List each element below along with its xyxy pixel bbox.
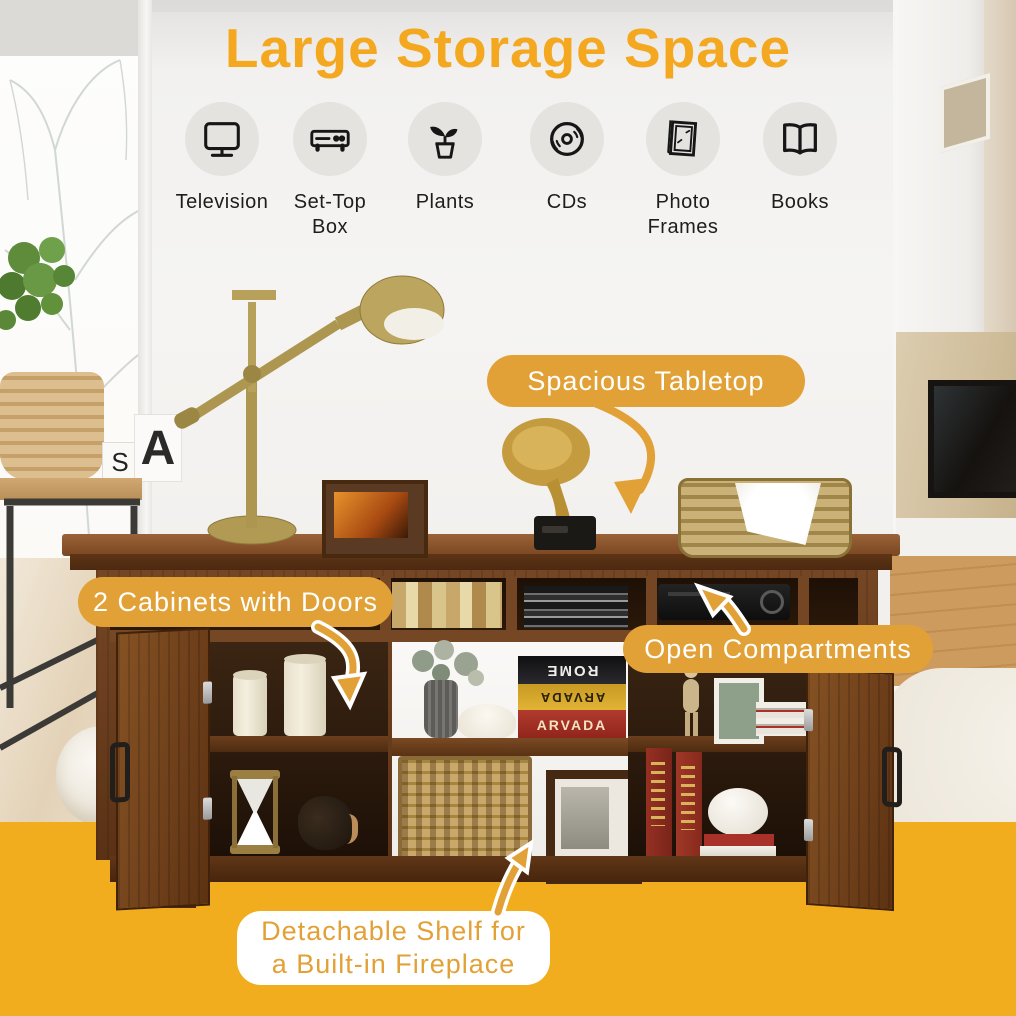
feature-circle <box>530 102 604 176</box>
door-hinge <box>804 709 813 732</box>
led-candle <box>233 674 267 736</box>
feature-circle <box>646 102 720 176</box>
callout-label-line1: Detachable Shelf for <box>261 915 526 948</box>
door-hinge <box>804 819 813 842</box>
round-speaker <box>708 788 768 836</box>
red-book <box>704 834 774 846</box>
wicker-basket-left <box>0 372 104 480</box>
photo-frame-icon <box>660 116 706 162</box>
feature-label: Set-Top Box <box>278 190 382 240</box>
divider <box>506 576 517 634</box>
feature-circle <box>185 102 259 176</box>
door-handle <box>882 746 902 807</box>
feature-set-top-box: Set-Top Box <box>270 102 390 240</box>
fireplace-opening <box>928 380 1016 498</box>
lace-cloth <box>735 483 821 545</box>
door-hinge <box>203 797 212 819</box>
letter-mug-s: S <box>102 442 138 482</box>
door-hinge <box>203 681 212 703</box>
callout-label-line2: a Built-in Fireplace <box>272 948 516 981</box>
dvd-knob <box>760 590 784 614</box>
feature-label: Plants <box>393 190 497 215</box>
book-icon <box>777 116 823 162</box>
gramophone <box>498 414 608 554</box>
feature-label: Books <box>748 190 852 215</box>
tabletop-picture-frame <box>322 480 428 558</box>
console-table-top <box>0 478 142 500</box>
plant-icon <box>422 116 468 162</box>
cd-stack <box>524 586 628 628</box>
ceramic-dish <box>458 704 516 740</box>
television-icon <box>199 116 245 162</box>
dvd-slot <box>668 592 730 596</box>
callout-label: Spacious Tabletop <box>527 366 764 397</box>
wooden-mannequin <box>676 664 706 736</box>
feature-label: CDs <box>515 190 619 215</box>
feature-television: Television <box>162 102 282 215</box>
white-rug <box>882 668 1016 825</box>
set-top-box-icon <box>307 116 353 162</box>
product-infographic: S A <box>0 0 1016 1016</box>
tall-red-book <box>676 752 702 856</box>
tall-red-book <box>646 748 672 856</box>
callout-label: Open Compartments <box>644 634 912 665</box>
book-spine: ARVADA <box>518 684 626 710</box>
tabletop-basket <box>678 478 852 558</box>
book-spine: ARVADA <box>518 710 626 740</box>
mug-letter: S <box>111 447 128 478</box>
vase <box>424 680 458 738</box>
feature-label: Television <box>170 190 274 215</box>
callout-cabinets: 2 Cabinets with Doors <box>78 577 393 627</box>
house-plant <box>0 228 104 348</box>
page-title: Large Storage Space <box>0 16 1016 80</box>
feature-circle <box>763 102 837 176</box>
book-spine: ROME <box>518 656 626 684</box>
right-cabinet-door <box>806 667 894 911</box>
cd-icon <box>544 116 590 162</box>
ceiling-strip <box>0 0 1016 12</box>
elephant-figurine <box>298 796 354 850</box>
detachable-shelf-board <box>392 738 628 756</box>
led-candle <box>284 658 326 736</box>
hourglass <box>230 770 280 854</box>
feature-circle <box>408 102 482 176</box>
door-handle <box>110 742 130 803</box>
bottom-rail <box>110 856 858 882</box>
feature-cds: CDs <box>507 102 627 215</box>
callout-label: 2 Cabinets with Doors <box>93 587 378 618</box>
feature-books: Books <box>740 102 860 215</box>
left-cabinet-door <box>116 628 210 911</box>
decor-book-stack: ROME ARVADA ARVADA <box>518 656 626 740</box>
callout-detachable-shelf: Detachable Shelf for a Built-in Fireplac… <box>237 911 550 985</box>
feature-photo-frames: Photo Frames <box>623 102 743 240</box>
feature-label: Photo Frames <box>631 190 735 240</box>
callout-spacious-tabletop: Spacious Tabletop <box>487 355 805 407</box>
books-in-compartment <box>392 582 502 628</box>
feature-plants: Plants <box>385 102 505 215</box>
callout-open-compartments: Open Compartments <box>623 625 933 673</box>
feature-circle <box>293 102 367 176</box>
